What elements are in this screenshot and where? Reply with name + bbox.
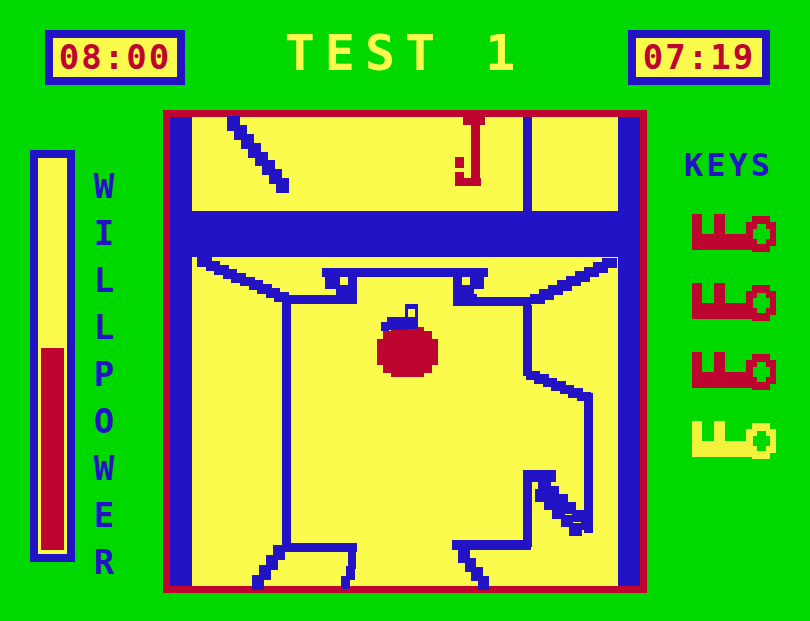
key-1-icon (692, 214, 776, 254)
key-4-icon (692, 421, 776, 461)
timer-right: 07:19 (628, 30, 770, 85)
willpower-gauge-fill (41, 348, 64, 550)
maze-area[interactable] (163, 110, 647, 593)
timer-right-value: 07:19 (643, 37, 755, 77)
willpower-gauge (30, 150, 75, 562)
key-3-icon (692, 352, 776, 392)
keys-panel (692, 214, 776, 461)
keys-label: KEYS (684, 146, 773, 184)
willpower-label: WILLPOWER (84, 166, 124, 589)
key-2-icon (692, 283, 776, 323)
